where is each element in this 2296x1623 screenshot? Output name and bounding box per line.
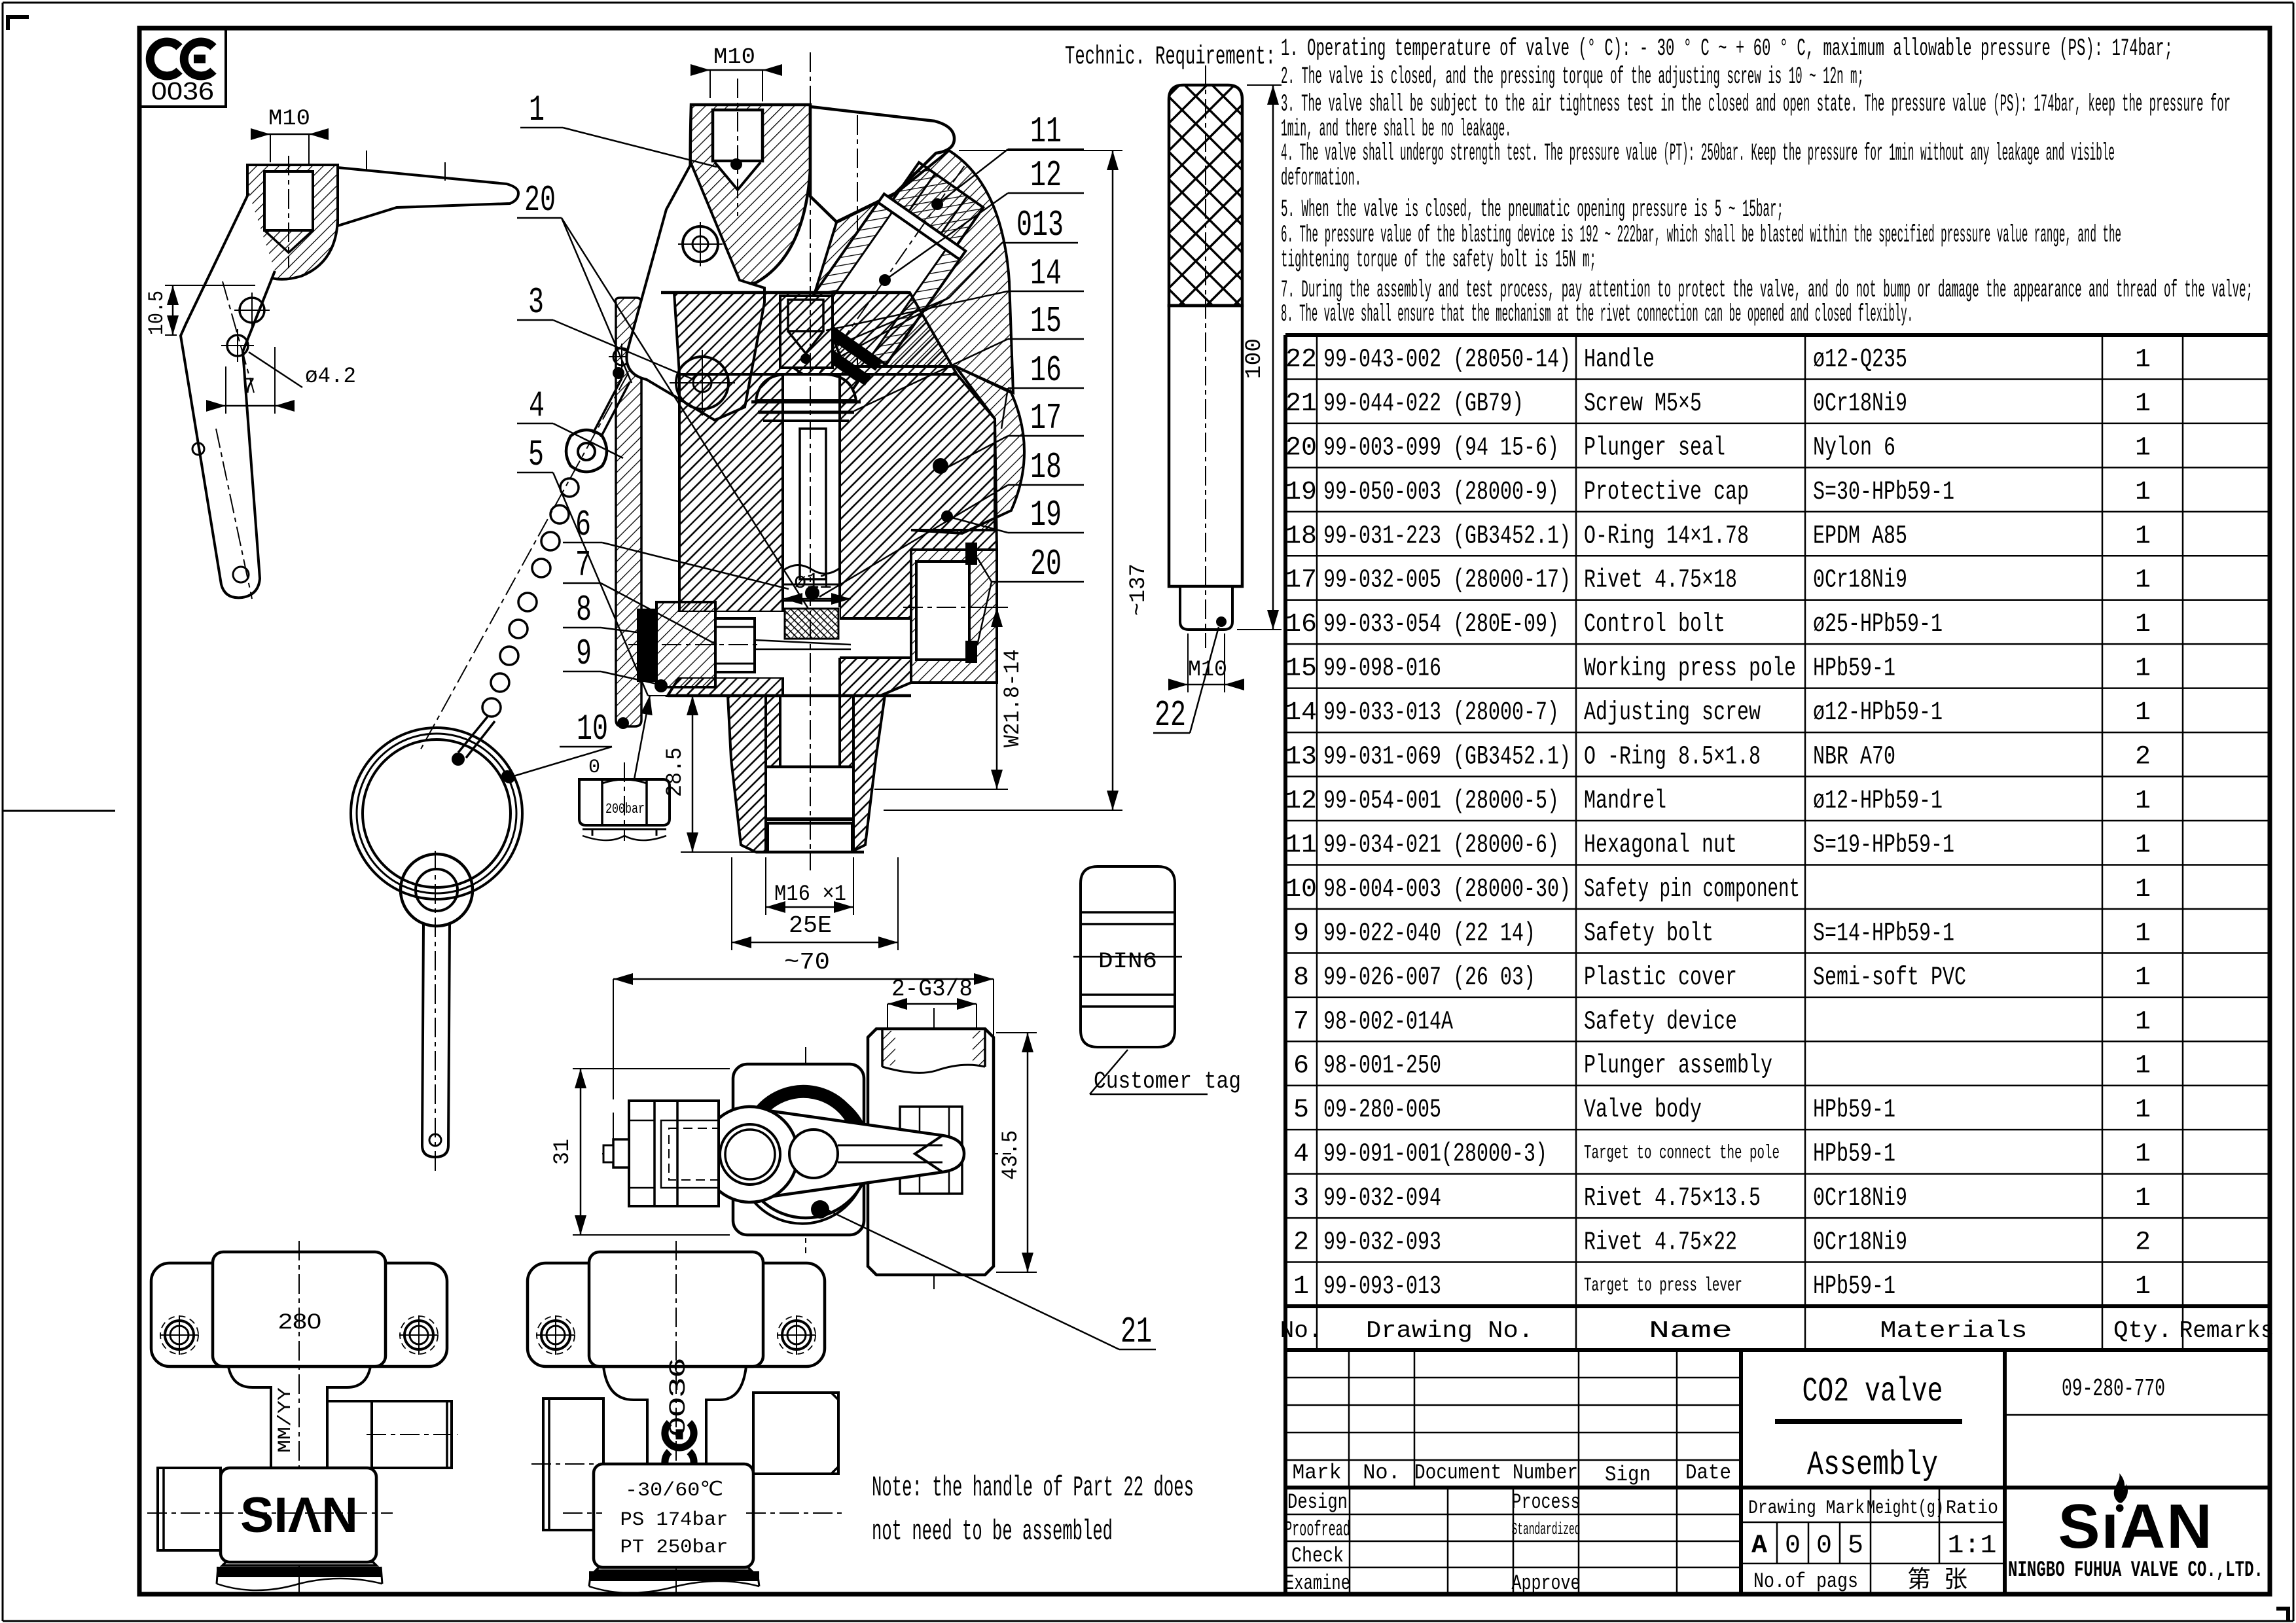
svg-text:28.5: 28.5	[663, 747, 688, 797]
svg-text:21: 21	[1285, 389, 1317, 419]
svg-text:6: 6	[575, 504, 591, 546]
svg-text:SıAN: SıAN	[2058, 1491, 2213, 1561]
svg-text:Remarks: Remarks	[2179, 1317, 2274, 1344]
svg-text:M10: M10	[268, 107, 310, 132]
svg-text:22: 22	[1155, 694, 1186, 736]
svg-text:not need to be assembled: not need to be assembled	[872, 1516, 1113, 1548]
svg-text:2: 2	[2135, 1228, 2151, 1258]
svg-text:6: 6	[1293, 1052, 1309, 1081]
svg-text:SIΛN: SIΛN	[240, 1488, 358, 1543]
svg-text:8: 8	[576, 589, 592, 631]
svg-text:W21.8-14: W21.8-14	[1001, 649, 1026, 747]
svg-text:ø25-HPb59-1: ø25-HPb59-1	[1813, 610, 1943, 639]
svg-text:14: 14	[1030, 253, 1062, 294]
svg-text:99-026-007 (26 03): 99-026-007 (26 03)	[1323, 963, 1535, 993]
svg-text:PT 250bar: PT 250bar	[620, 1537, 728, 1559]
svg-text:1: 1	[2135, 875, 2151, 904]
svg-text:1: 1	[2135, 1052, 2151, 1081]
svg-text:Mandrel: Mandrel	[1584, 787, 1666, 816]
svg-text:ø12-HPb59-1: ø12-HPb59-1	[1813, 787, 1943, 816]
svg-text:1: 1	[2135, 963, 2151, 993]
svg-text:Sign: Sign	[1605, 1463, 1651, 1487]
svg-text:99-043-002 (28050-14): 99-043-002 (28050-14)	[1323, 345, 1571, 374]
svg-text:0036: 0036	[151, 78, 214, 105]
svg-text:Screw M5×5: Screw M5×5	[1584, 389, 1702, 419]
svg-text:2-G3/8: 2-G3/8	[891, 976, 973, 1003]
svg-text:1. Operating temperature of va: 1. Operating temperature of valve (° C):…	[1281, 35, 2173, 63]
svg-text:1: 1	[1293, 1272, 1309, 1302]
svg-text:013: 013	[1016, 204, 1064, 246]
svg-text:9: 9	[576, 633, 592, 675]
svg-text:Design: Design	[1287, 1490, 1348, 1514]
svg-text:16: 16	[1030, 349, 1062, 391]
svg-text:MM/YY: MM/YY	[276, 1387, 296, 1453]
svg-text:Document Number: Document Number	[1414, 1461, 1578, 1485]
svg-text:7: 7	[1293, 1007, 1309, 1037]
svg-text:31: 31	[550, 1139, 575, 1165]
svg-text:5: 5	[1293, 1096, 1309, 1125]
svg-text:Technic. Requirement:: Technic. Requirement:	[1065, 43, 1276, 72]
svg-text:Valve body: Valve body	[1584, 1096, 1702, 1125]
svg-text:1: 1	[2135, 522, 2151, 551]
svg-text:0: 0	[588, 757, 600, 779]
svg-text:9: 9	[1293, 919, 1309, 948]
svg-text:Name: Name	[1649, 1317, 1732, 1344]
svg-text:Nylon 6: Nylon 6	[1813, 433, 1895, 463]
svg-text:Rivet 4.75×13.5: Rivet 4.75×13.5	[1584, 1184, 1761, 1213]
svg-text:99-031-069 (GB3452.1): 99-031-069 (GB3452.1)	[1323, 743, 1571, 772]
svg-text:1: 1	[529, 89, 545, 131]
svg-text:1: 1	[2135, 566, 2151, 596]
svg-text:Approve: Approve	[1512, 1571, 1581, 1596]
svg-text:Safety bolt: Safety bolt	[1584, 919, 1713, 948]
svg-text:98-002-014A: 98-002-014A	[1323, 1007, 1453, 1037]
svg-text:Examine: Examine	[1285, 1571, 1350, 1596]
svg-text:3: 3	[1293, 1184, 1309, 1213]
svg-text:0Cr18Ni9: 0Cr18Ni9	[1813, 566, 1907, 596]
svg-text:1: 1	[2135, 919, 2151, 948]
svg-text:ø11: ø11	[794, 570, 832, 595]
svg-text:99-044-022 (GB79): 99-044-022 (GB79)	[1323, 389, 1524, 419]
svg-text:deformation.: deformation.	[1281, 165, 1361, 192]
svg-text:1: 1	[2135, 1096, 2151, 1125]
svg-text:10.5: 10.5	[145, 291, 169, 335]
svg-text:Standardized: Standardized	[1512, 1520, 1581, 1539]
svg-text:ø4.2: ø4.2	[305, 365, 356, 389]
svg-text:S=30-HPb59-1: S=30-HPb59-1	[1813, 478, 1954, 507]
svg-text:22: 22	[1285, 345, 1317, 374]
svg-text:99-003-099 (94 15-6): 99-003-099 (94 15-6)	[1323, 433, 1559, 463]
svg-text:3: 3	[528, 281, 544, 323]
svg-text:S=14-HPb59-1: S=14-HPb59-1	[1813, 919, 1954, 948]
svg-text:1: 1	[2135, 433, 2151, 463]
svg-text:7. During the assembly and tes: 7. During the assembly and test process,…	[1281, 277, 2253, 304]
svg-text:99-093-013: 99-093-013	[1323, 1272, 1441, 1302]
svg-text:Plunger seal: Plunger seal	[1584, 433, 1725, 463]
svg-text:19: 19	[1030, 494, 1062, 536]
svg-text:Date: Date	[1685, 1461, 1731, 1485]
svg-text:99-032-093: 99-032-093	[1323, 1228, 1441, 1258]
svg-text:No.: No.	[1363, 1461, 1401, 1485]
svg-text:10: 10	[1285, 875, 1317, 904]
svg-text:7: 7	[242, 375, 255, 400]
svg-text:Target to press lever: Target to press lever	[1584, 1275, 1742, 1297]
svg-text:20: 20	[524, 179, 556, 221]
svg-text:1: 1	[2135, 1007, 2151, 1037]
svg-text:1: 1	[2135, 610, 2151, 639]
svg-text:1: 1	[2135, 389, 2151, 419]
svg-text:-30/60℃: -30/60℃	[625, 1480, 723, 1502]
svg-text:4. The valve shall undergo str: 4. The valve shall undergo strength test…	[1281, 140, 2115, 168]
svg-text:Drawing No.: Drawing No.	[1366, 1317, 1534, 1344]
svg-text:DIN6: DIN6	[1098, 950, 1157, 974]
svg-text:17: 17	[1285, 566, 1317, 596]
svg-text:tightening torque of the safet: tightening torque of the safety bolt is …	[1281, 247, 1596, 274]
svg-text:8. The valve shall ensure that: 8. The valve shall ensure that the mecha…	[1281, 301, 1913, 329]
svg-text:0Cr18Ni9: 0Cr18Ni9	[1813, 389, 1907, 419]
svg-text:99-022-040 (22 14): 99-022-040 (22 14)	[1323, 919, 1535, 948]
svg-text:99-091-001(28000-3): 99-091-001(28000-3)	[1323, 1140, 1547, 1169]
svg-text:1: 1	[2135, 478, 2151, 507]
svg-text:15: 15	[1285, 654, 1317, 684]
svg-text:21: 21	[1121, 1311, 1152, 1353]
svg-text:4: 4	[529, 385, 545, 427]
svg-text:99-031-223 (GB3452.1): 99-031-223 (GB3452.1)	[1323, 522, 1571, 551]
svg-text:HPb59-1: HPb59-1	[1813, 1140, 1895, 1169]
svg-text:1min, and there shall be no le: 1min, and there shall be no leakage.	[1281, 116, 1511, 143]
svg-text:ø12-Q235: ø12-Q235	[1813, 345, 1907, 374]
svg-text:13: 13	[1285, 743, 1317, 772]
svg-text:EPDM A85: EPDM A85	[1813, 522, 1907, 551]
svg-text:Mark: Mark	[1293, 1461, 1342, 1485]
svg-text:1: 1	[2135, 345, 2151, 374]
svg-text:Handle: Handle	[1584, 345, 1655, 374]
svg-text:PS 174bar: PS 174bar	[620, 1509, 728, 1531]
svg-text:M10: M10	[713, 45, 755, 70]
svg-text:2. The valve is closed, and th: 2. The valve is closed, and the pressing…	[1281, 63, 1864, 91]
svg-text:3. The valve shall be subject: 3. The valve shall be subject to the air…	[1281, 91, 2231, 118]
svg-text:1:1: 1:1	[1948, 1531, 1997, 1561]
svg-text:2: 2	[1293, 1228, 1309, 1258]
svg-text:6. The pressure value of the b: 6. The pressure value of the blasting de…	[1281, 222, 2121, 249]
svg-text:ø12-HPb59-1: ø12-HPb59-1	[1813, 698, 1943, 728]
svg-text:第 张: 第 张	[1907, 1565, 1967, 1592]
svg-text:99-033-013 (28000-7): 99-033-013 (28000-7)	[1323, 698, 1559, 728]
svg-text:16: 16	[1285, 610, 1317, 639]
svg-text:Customer tag: Customer tag	[1094, 1068, 1241, 1095]
svg-text:1: 1	[2135, 1140, 2151, 1169]
svg-text:99-032-005 (28000-17): 99-032-005 (28000-17)	[1323, 566, 1571, 596]
svg-text:Working press pole: Working press pole	[1584, 654, 1796, 684]
svg-text:5: 5	[528, 434, 544, 476]
svg-text:12: 12	[1030, 154, 1062, 196]
svg-text:A: A	[1751, 1531, 1767, 1561]
svg-text:Assembly: Assembly	[1807, 1446, 1938, 1484]
svg-text:8: 8	[1293, 963, 1309, 993]
svg-text:18: 18	[1285, 522, 1317, 551]
svg-text:Qty.: Qty.	[2113, 1317, 2172, 1344]
svg-text:1: 1	[2135, 698, 2151, 728]
svg-text:1: 1	[2135, 787, 2151, 816]
svg-text:NINGBO FUHUA VALVE CO.,LTD.: NINGBO FUHUA VALVE CO.,LTD.	[2008, 1558, 2263, 1583]
svg-text:HPb59-1: HPb59-1	[1813, 1096, 1895, 1125]
svg-text:18: 18	[1030, 446, 1062, 488]
svg-text:Rivet 4.75×18: Rivet 4.75×18	[1584, 566, 1737, 596]
svg-text:99-033-054 (280E-09): 99-033-054 (280E-09)	[1323, 610, 1559, 639]
svg-text:99-098-016: 99-098-016	[1323, 654, 1441, 684]
svg-text:20: 20	[1285, 433, 1317, 463]
svg-text:Rivet 4.75×22: Rivet 4.75×22	[1584, 1228, 1737, 1258]
svg-text:0Cr18Ni9: 0Cr18Ni9	[1813, 1184, 1907, 1213]
svg-text:Materials: Materials	[1880, 1317, 2028, 1344]
svg-text:19: 19	[1285, 478, 1317, 507]
svg-text:Note: the handle of Part 22 do: Note: the handle of Part 22 does	[872, 1472, 1194, 1505]
svg-text:O -Ring 8.5×1.8: O -Ring 8.5×1.8	[1584, 743, 1761, 772]
svg-text:4: 4	[1293, 1140, 1309, 1169]
svg-text:99-050-003 (28000-9): 99-050-003 (28000-9)	[1323, 478, 1559, 507]
svg-text:12: 12	[1285, 787, 1317, 816]
svg-text:99-032-094: 99-032-094	[1323, 1184, 1441, 1213]
svg-text:5. When the valve is closed, t: 5. When the valve is closed, the pneumat…	[1281, 196, 1784, 224]
svg-text:Control bolt: Control bolt	[1584, 610, 1725, 639]
svg-text:Semi-soft PVC: Semi-soft PVC	[1813, 963, 1966, 993]
svg-text:Adjusting screw: Adjusting screw	[1584, 698, 1761, 728]
svg-text:10: 10	[577, 708, 608, 750]
svg-text:99-034-021 (28000-6): 99-034-021 (28000-6)	[1323, 830, 1559, 860]
svg-text:100: 100	[1242, 338, 1267, 379]
svg-text:11: 11	[1030, 111, 1062, 152]
svg-text:Drawing Mark: Drawing Mark	[1748, 1497, 1865, 1520]
svg-text:Protective cap: Protective cap	[1584, 478, 1749, 507]
svg-text:09-280-770: 09-280-770	[2062, 1375, 2165, 1403]
svg-text:1: 1	[2135, 830, 2151, 860]
svg-text:99-054-001 (28000-5): 99-054-001 (28000-5)	[1323, 787, 1559, 816]
svg-text:Safety device: Safety device	[1584, 1007, 1737, 1037]
svg-text:No.of pags: No.of pags	[1753, 1569, 1858, 1594]
svg-text:1: 1	[2135, 1272, 2151, 1302]
svg-text:1: 1	[2135, 654, 2151, 684]
svg-text:Process: Process	[1512, 1490, 1581, 1514]
svg-text:~70: ~70	[784, 949, 830, 976]
svg-text:98-004-003 (28000-30): 98-004-003 (28000-30)	[1323, 875, 1571, 904]
svg-text:0Cr18Ni9: 0Cr18Ni9	[1813, 1228, 1907, 1258]
svg-text:CO2 valve: CO2 valve	[1803, 1372, 1943, 1411]
svg-text:Target to connect the pole: Target to connect the pole	[1584, 1143, 1780, 1165]
svg-text:0: 0	[1816, 1531, 1832, 1561]
svg-text:S=19-HPb59-1: S=19-HPb59-1	[1813, 830, 1954, 860]
svg-text:5: 5	[1848, 1531, 1863, 1561]
svg-text:11: 11	[1285, 830, 1317, 860]
svg-text:O-Ring 14×1.78: O-Ring 14×1.78	[1584, 522, 1749, 551]
svg-text:43.5: 43.5	[999, 1130, 1024, 1180]
svg-text:Hexagonal nut: Hexagonal nut	[1584, 830, 1737, 860]
svg-text:Check: Check	[1291, 1544, 1344, 1568]
svg-text:0: 0	[1785, 1531, 1801, 1561]
svg-text:Plunger assembly: Plunger assembly	[1584, 1052, 1772, 1081]
svg-text:20: 20	[1030, 543, 1062, 585]
svg-text:Safety pin component: Safety pin component	[1584, 875, 1800, 904]
svg-text:NBR A70: NBR A70	[1813, 743, 1895, 772]
svg-text:HPb59-1: HPb59-1	[1813, 654, 1895, 684]
svg-text:1: 1	[2135, 1184, 2151, 1213]
svg-text:HPb59-1: HPb59-1	[1813, 1272, 1895, 1302]
svg-text:Meight(g): Meight(g)	[1867, 1497, 1944, 1520]
svg-text:2: 2	[2135, 743, 2151, 772]
svg-text:09-280-005: 09-280-005	[1323, 1096, 1441, 1125]
svg-text:15: 15	[1030, 300, 1062, 342]
svg-text:~137: ~137	[1126, 563, 1151, 616]
svg-text:7: 7	[575, 544, 591, 586]
svg-text:14: 14	[1285, 698, 1317, 728]
svg-text:No.: No.	[1280, 1317, 1323, 1344]
svg-text:Proofread: Proofread	[1285, 1518, 1350, 1542]
svg-text:17: 17	[1030, 397, 1062, 439]
svg-text:25E: 25E	[789, 912, 832, 939]
svg-text:98-001-250: 98-001-250	[1323, 1052, 1441, 1081]
svg-text:Plastic cover: Plastic cover	[1584, 963, 1737, 993]
svg-text:Ratio: Ratio	[1946, 1497, 1998, 1520]
